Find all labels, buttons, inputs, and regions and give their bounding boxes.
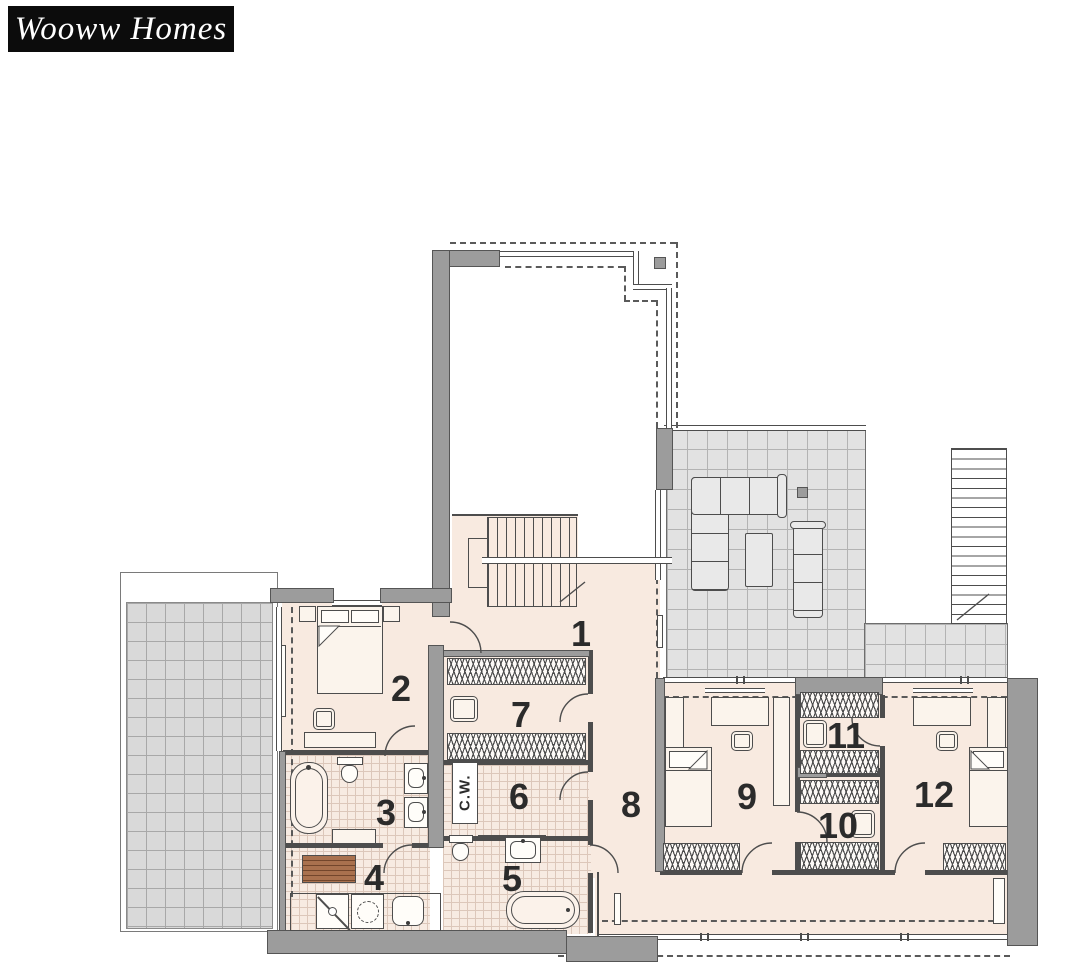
room-label-11: 11 <box>827 718 865 754</box>
room-label-7: 7 <box>511 697 531 733</box>
blanket-fold <box>689 751 707 769</box>
blanket-fold <box>971 751 989 769</box>
stair-break-mark <box>560 582 585 602</box>
door-swing <box>385 726 415 756</box>
door-swing <box>450 622 481 653</box>
stair-break-mark <box>957 594 989 620</box>
room-label-5: 5 <box>502 861 522 897</box>
brand-logo-text: Wooww Homes <box>15 11 227 48</box>
room-label-9: 9 <box>737 779 757 815</box>
door-swing <box>895 843 925 873</box>
door-swing <box>560 694 588 722</box>
brand-logo: Wooww Homes <box>8 6 234 52</box>
room-label-1: 1 <box>571 616 591 652</box>
room-label-12: 12 <box>914 777 954 813</box>
room-label-6: 6 <box>509 779 529 815</box>
blanket-fold <box>319 626 339 646</box>
room-label-2: 2 <box>391 671 411 707</box>
room-label-8: 8 <box>621 787 641 823</box>
room-label-4: 4 <box>364 860 384 896</box>
door-swing <box>590 845 618 873</box>
door-swing <box>560 772 588 800</box>
door-swing <box>742 843 772 873</box>
room-label-3: 3 <box>376 795 396 831</box>
door-swing <box>384 845 412 873</box>
room-label-10: 10 <box>818 808 858 844</box>
annotation-overlay <box>0 0 1066 963</box>
floor-plan: C.W. <box>0 0 1066 963</box>
